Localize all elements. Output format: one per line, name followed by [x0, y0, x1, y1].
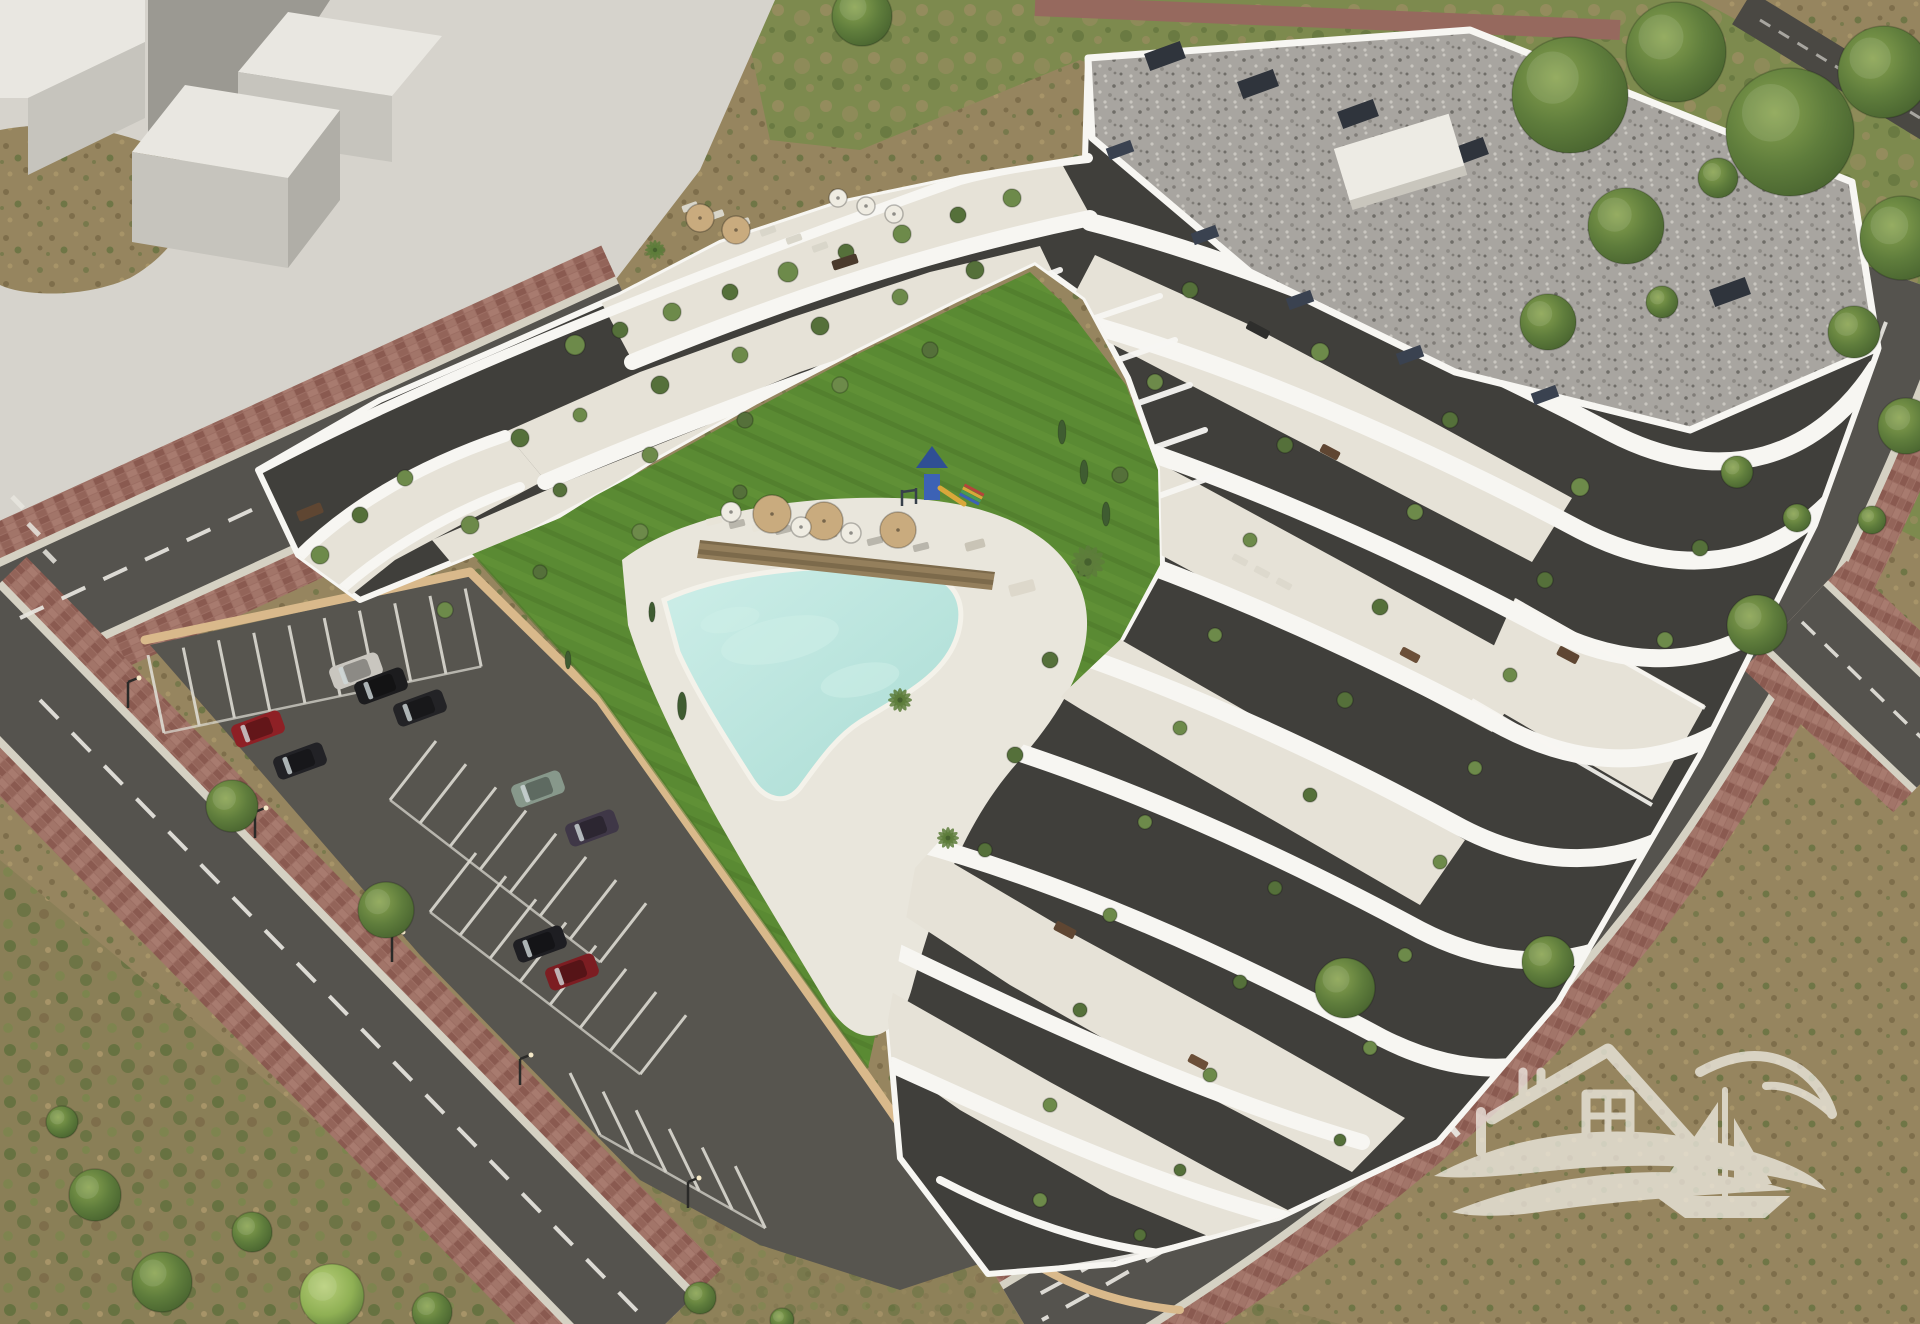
terrace-plant [632, 524, 648, 540]
tree [1520, 294, 1576, 350]
terrace-plant [778, 262, 798, 282]
terrace-plant [1407, 504, 1423, 520]
terrace-plant [1147, 374, 1163, 390]
tree [684, 1282, 716, 1314]
terrace-plant [573, 408, 587, 422]
terrace-plant [1311, 343, 1329, 361]
terrace-plant [1303, 788, 1317, 802]
cypress-tree [1080, 460, 1088, 484]
tree [1698, 158, 1738, 198]
terrace-plant [1174, 1164, 1186, 1176]
terrace-plant [950, 207, 966, 223]
terrace-plant [737, 412, 753, 428]
terrace-plant [1043, 1098, 1057, 1112]
tree [1588, 188, 1664, 264]
cypress-tree [678, 692, 687, 720]
terrace-plant [832, 377, 848, 393]
terrace-plant [1363, 1041, 1377, 1055]
terrace-plant [1372, 599, 1388, 615]
terrace-plant [1657, 632, 1673, 648]
terrace-plant [461, 516, 479, 534]
tree [1522, 936, 1574, 988]
cypress-tree [1058, 420, 1066, 444]
terrace-plant [892, 289, 908, 305]
terrace-plant [1134, 1229, 1146, 1241]
tree [1315, 958, 1375, 1018]
terrace-plant [1042, 652, 1058, 668]
parasol-white [857, 197, 875, 215]
tree [1512, 37, 1628, 153]
tree [1727, 595, 1787, 655]
tree [232, 1212, 272, 1252]
tree [69, 1169, 121, 1221]
tree [1828, 306, 1880, 358]
terrace-plant [511, 429, 529, 447]
terrace-plant [553, 483, 567, 497]
terrace-plant [1103, 908, 1117, 922]
tree [1721, 456, 1753, 488]
tree [206, 780, 258, 832]
terrace-plant [352, 507, 368, 523]
parasol-tan [686, 204, 714, 232]
terrace-plant [893, 225, 911, 243]
parasol-white [791, 517, 811, 537]
terrace-plant [437, 602, 453, 618]
terrace-plant [733, 485, 747, 499]
terrace-plant [811, 317, 829, 335]
terrace-plant [1003, 189, 1021, 207]
terrace-plant [1433, 855, 1447, 869]
cypress-tree [565, 651, 571, 669]
terrace-plant [533, 565, 547, 579]
terrace-plant [1268, 881, 1282, 895]
cypress-tree [1102, 502, 1110, 526]
terrace-plant [1398, 948, 1412, 962]
terrace-plant [1277, 437, 1293, 453]
terrace-plant [1182, 282, 1198, 298]
terrace-plant [1112, 467, 1128, 483]
terrace-plant [612, 322, 628, 338]
terrace-plant [978, 843, 992, 857]
terrace-plant [966, 261, 984, 279]
terrace-plant [663, 303, 681, 321]
terrace-plant [651, 376, 669, 394]
terrace-plant [565, 335, 585, 355]
parasol-white [885, 205, 903, 223]
terrace-plant [1337, 692, 1353, 708]
parasol-white [721, 502, 741, 522]
terrace-plant [1138, 815, 1152, 829]
terrace-plant [1208, 628, 1222, 642]
terrace-plant [1503, 668, 1517, 682]
terrace-plant [311, 546, 329, 564]
tree [1726, 68, 1854, 196]
parasol-tan [805, 502, 843, 540]
tree [358, 882, 414, 938]
terrace-plant [732, 347, 748, 363]
terrace-plant [642, 447, 658, 463]
tree [132, 1252, 192, 1312]
tree [1626, 2, 1726, 102]
tree [1858, 506, 1886, 534]
terrace-plant [1173, 721, 1187, 735]
terrace-plant [1468, 761, 1482, 775]
parasol-tan [722, 216, 750, 244]
terrace-plant [397, 470, 413, 486]
tree [1783, 504, 1811, 532]
terrace-plant [722, 284, 738, 300]
terrace-plant [1442, 412, 1458, 428]
tree [46, 1106, 78, 1138]
tree [300, 1264, 364, 1324]
terrace-plant [1073, 1003, 1087, 1017]
terrace-plant [1692, 540, 1708, 556]
tree [1838, 26, 1920, 118]
terrace-plant [1537, 572, 1553, 588]
parasol-white [841, 523, 861, 543]
tree [1646, 286, 1678, 318]
terrace-plant [1243, 533, 1257, 547]
parasol-tan [880, 512, 916, 548]
terrace-plant [1233, 975, 1247, 989]
terrace-plant [1033, 1193, 1047, 1207]
parasol-white [829, 189, 847, 207]
parasol-tan [753, 495, 791, 533]
terrace-plant [1203, 1068, 1217, 1082]
terrace-plant [1334, 1134, 1346, 1146]
aerial-render [0, 0, 1920, 1324]
terrace-plant [1007, 747, 1023, 763]
terrace-plant [922, 342, 938, 358]
tree [412, 1292, 452, 1324]
cypress-tree [649, 602, 655, 622]
scene-canvas [0, 0, 1920, 1324]
terrace-plant [1571, 478, 1589, 496]
